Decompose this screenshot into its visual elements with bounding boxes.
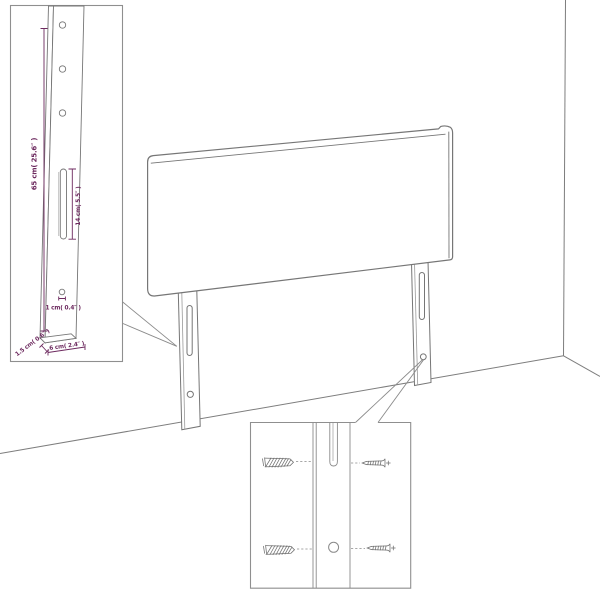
- leg-post-hole-1: [59, 22, 65, 28]
- callout-line-right: [378, 360, 424, 423]
- callout-line-left: [356, 360, 423, 423]
- screw-detail-inset: [251, 423, 411, 589]
- leg-detail-inset: 65 cm( 25.6″ ) 14 cm( 5.5″ ) 1 cm( 0.4″ …: [11, 6, 123, 362]
- leg-strip-hole: [329, 542, 339, 552]
- left-leg-hole: [187, 391, 193, 397]
- left-leg-slot: [187, 306, 192, 356]
- leg-post-bottom-hole: [59, 289, 65, 295]
- headboard: [148, 126, 453, 296]
- leg-post-hole-3: [59, 110, 65, 116]
- callout-line-upper: [123, 302, 177, 346]
- right-leg-slot: [419, 273, 424, 320]
- headboard-panel: [148, 126, 453, 296]
- detail-callout-left: [123, 302, 177, 346]
- dimension-slot-length-label: 14 cm( 5.5″ ): [76, 186, 82, 226]
- screw-inset-fill: [251, 423, 411, 589]
- callout-line-lower: [123, 324, 177, 347]
- leg-post-slot: [60, 169, 66, 239]
- headboard-left-leg: [178, 291, 200, 430]
- leg-post-hole-2: [59, 66, 65, 72]
- wall-corner-line: [564, 0, 566, 356]
- dimension-hole-diameter-label: 1 cm( 0.4″ ): [46, 306, 82, 312]
- product-dimension-diagram: 65 cm( 25.6″ ) 14 cm( 5.5″ ) 1 cm( 0.4″ …: [0, 0, 600, 600]
- dimension-leg-height-label: 65 cm( 25.6″ ): [31, 138, 39, 191]
- detail-callout-right: [356, 360, 424, 423]
- right-leg-hole: [420, 354, 426, 360]
- floor-corner-line: [564, 356, 600, 377]
